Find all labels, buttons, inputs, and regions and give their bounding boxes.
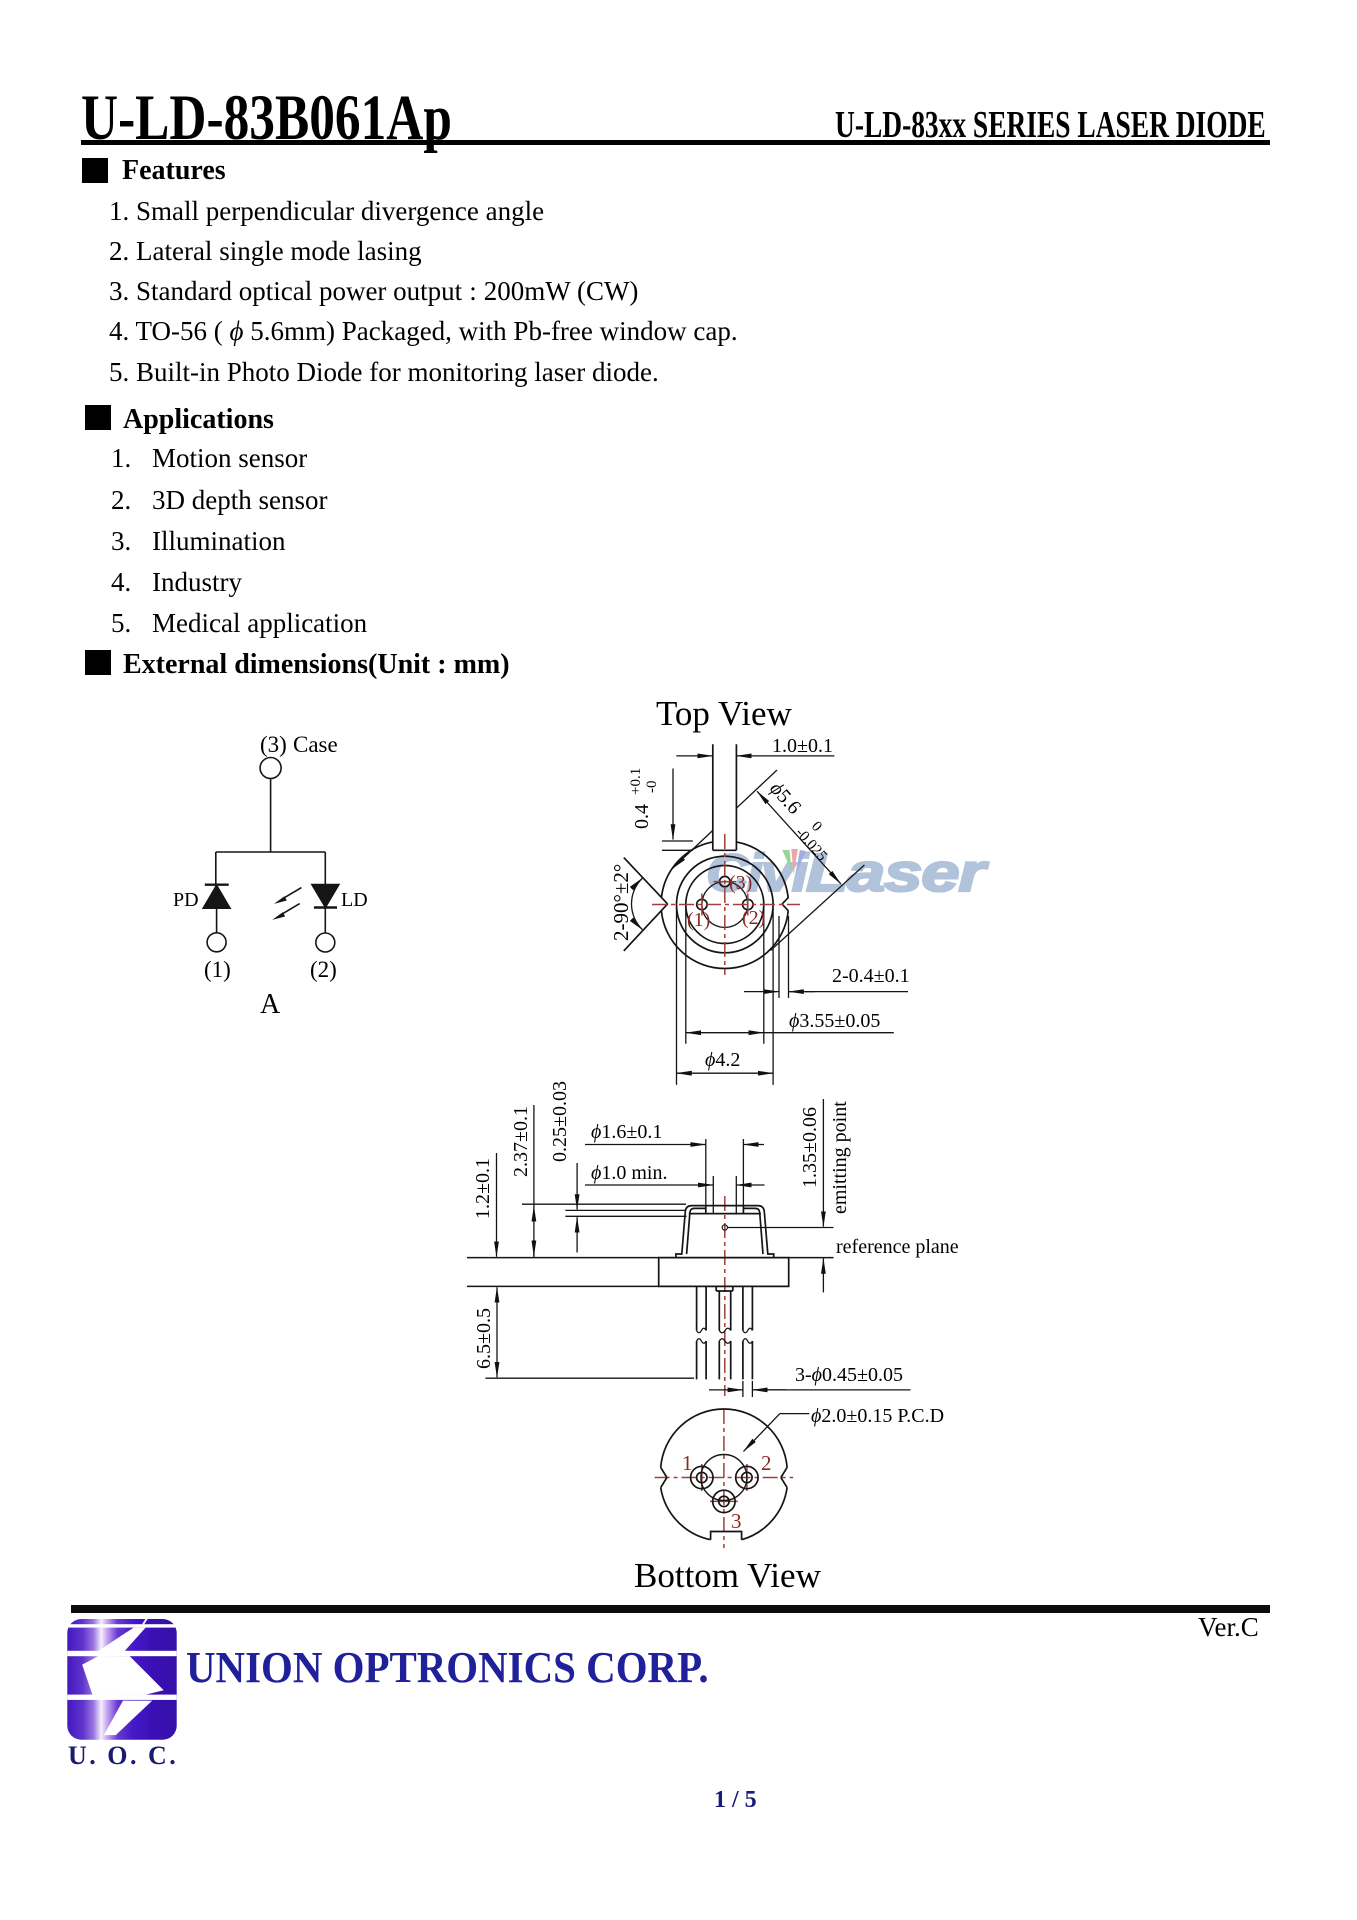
svg-text:ϕ2.0±0.15 P.C.D: ϕ2.0±0.15 P.C.D — [811, 1405, 944, 1427]
svg-text:Case: Case — [293, 732, 338, 757]
svg-text:LD: LD — [341, 889, 368, 911]
svg-text:+0.1: +0.1 — [628, 768, 644, 795]
svg-text:ϕ5.6: ϕ5.6 — [765, 778, 805, 819]
svg-text:(1): (1) — [687, 909, 710, 931]
svg-text:ϕ4.2: ϕ4.2 — [705, 1049, 740, 1071]
svg-text:(3): (3) — [729, 872, 752, 894]
svg-text:2.37±0.1: 2.37±0.1 — [510, 1106, 532, 1177]
svg-text:2-0.4±0.1: 2-0.4±0.1 — [832, 965, 910, 987]
svg-text:2-90°±2°: 2-90°±2° — [609, 864, 633, 941]
svg-text:2: 2 — [761, 1451, 772, 1475]
svg-text:(2): (2) — [310, 957, 337, 982]
svg-text:reference plane: reference plane — [836, 1236, 959, 1258]
svg-text:ϕ1.0 min.: ϕ1.0 min. — [591, 1162, 667, 1184]
svg-text:3: 3 — [731, 1509, 742, 1533]
svg-text:PD: PD — [173, 889, 199, 911]
svg-text:(1): (1) — [204, 957, 231, 982]
svg-text:1: 1 — [682, 1451, 693, 1475]
svg-text:3-ϕ0.45±0.05: 3-ϕ0.45±0.05 — [795, 1364, 903, 1386]
svg-text:Laser: Laser — [806, 843, 988, 903]
svg-text:1.2±0.1: 1.2±0.1 — [472, 1158, 494, 1219]
svg-text:1.0±0.1: 1.0±0.1 — [772, 735, 833, 757]
svg-text:0.4: 0.4 — [631, 804, 653, 829]
svg-text:0.25±0.03: 0.25±0.03 — [549, 1081, 571, 1162]
svg-text:1.35±0.06: 1.35±0.06 — [799, 1107, 821, 1188]
svg-text:ϕ3.55±0.05: ϕ3.55±0.05 — [789, 1010, 880, 1032]
svg-text:A: A — [260, 989, 281, 1020]
svg-text:(2): (2) — [742, 907, 765, 929]
svg-text:ϕ1.6±0.1: ϕ1.6±0.1 — [591, 1121, 662, 1143]
svg-text:-0: -0 — [644, 781, 660, 794]
svg-text:6.5±0.5: 6.5±0.5 — [473, 1308, 495, 1369]
svg-text:Bottom View: Bottom View — [634, 1556, 822, 1595]
svg-text:(3): (3) — [260, 732, 287, 757]
svg-text:emitting point: emitting point — [829, 1101, 851, 1214]
svg-text:Top View: Top View — [656, 694, 792, 733]
